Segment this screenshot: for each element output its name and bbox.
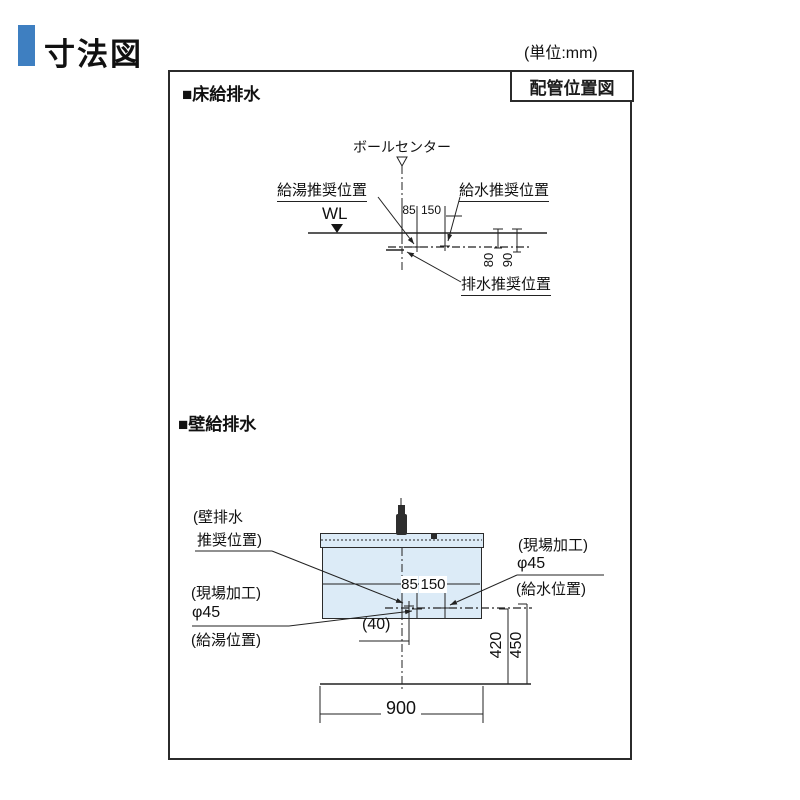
wall-section-heading: ■壁給排水 bbox=[178, 410, 256, 435]
page-title: 寸法図 bbox=[44, 29, 143, 74]
phi45-right-label: φ45 bbox=[517, 555, 545, 573]
bowl-center-label: ボールセンター bbox=[352, 137, 452, 157]
dimension-drawing-page: 寸法図 (単位:mm) 配管位置図 ■床給排水 ■壁給排水 ボールセンター 給湯… bbox=[0, 0, 800, 800]
cold-water-pos-label: (給水位置) bbox=[516, 578, 586, 599]
phi45-left-label: φ45 bbox=[192, 604, 220, 622]
water-level-label: WL bbox=[322, 204, 348, 224]
wall-drain-label-line1: (壁排水 bbox=[193, 506, 243, 527]
wall-dim-900: 900 bbox=[381, 698, 421, 719]
unit-label: (単位:mm) bbox=[524, 39, 598, 63]
floor-dim-85: 85 bbox=[401, 203, 417, 217]
wall-dim-420: 420 bbox=[489, 630, 505, 660]
wall-drain-label-line2: 推奨位置) bbox=[197, 529, 262, 550]
site-work-right-label: (現場加工) bbox=[518, 534, 588, 555]
wall-dim-150: 150 bbox=[419, 576, 447, 593]
hot-water-pos-label: (給湯位置) bbox=[191, 629, 261, 650]
pipe-position-box: 配管位置図 bbox=[510, 70, 634, 102]
hot-water-position-label: 給湯推奨位置 bbox=[277, 179, 367, 202]
text-layer: 寸法図 (単位:mm) 配管位置図 ■床給排水 ■壁給排水 ボールセンター 給湯… bbox=[0, 0, 800, 800]
site-work-left-label: (現場加工) bbox=[191, 582, 261, 603]
floor-dim-150: 150 bbox=[417, 203, 445, 217]
wall-dim-40: (40) bbox=[362, 616, 390, 634]
drain-position-label: 排水推奨位置 bbox=[461, 273, 551, 296]
cold-water-position-label: 給水推奨位置 bbox=[459, 179, 549, 202]
floor-dim-80: 80 bbox=[482, 247, 496, 273]
floor-dim-90: 90 bbox=[501, 247, 515, 273]
wall-dim-85: 85 bbox=[401, 576, 418, 593]
floor-section-heading: ■床給排水 bbox=[182, 80, 260, 105]
wall-dim-450: 450 bbox=[509, 630, 525, 660]
